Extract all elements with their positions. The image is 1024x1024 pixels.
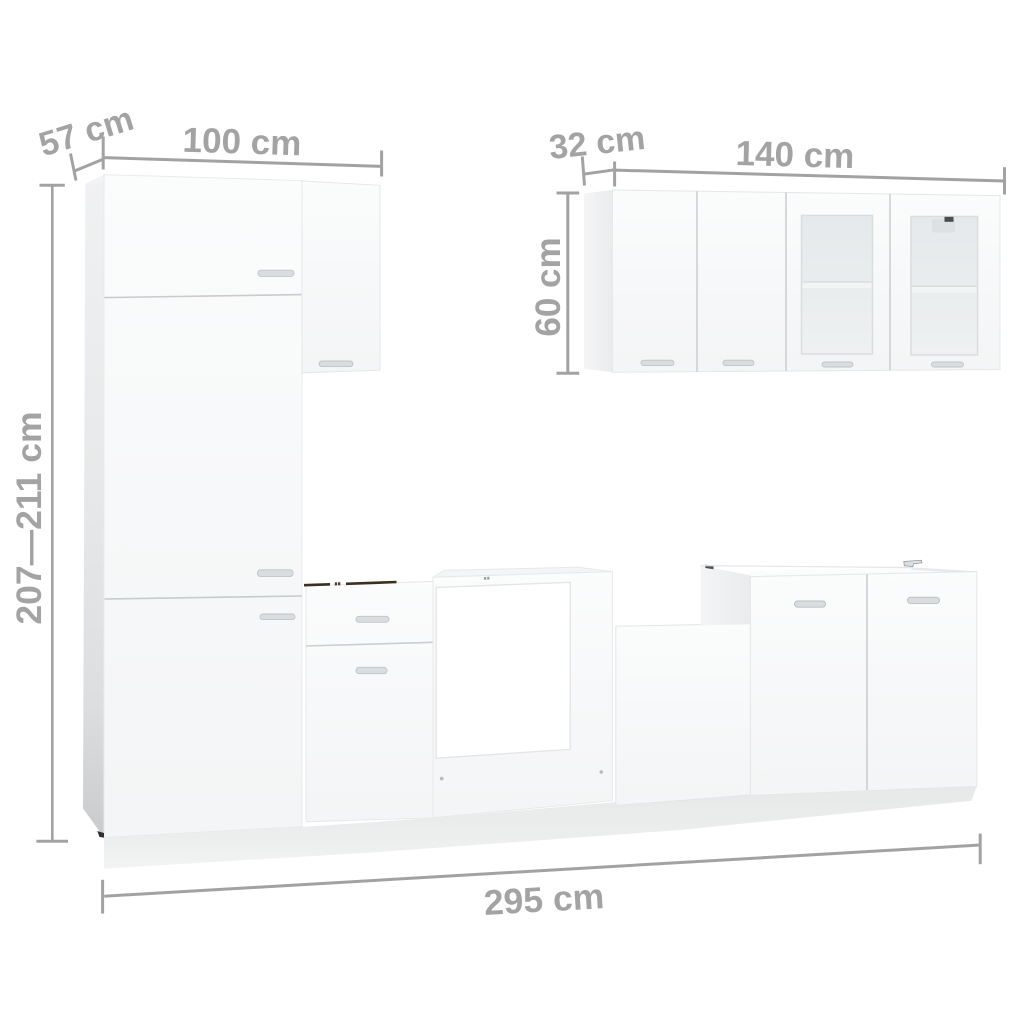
svg-text:207—211 cm: 207—211 cm bbox=[9, 411, 49, 624]
svg-text:100 cm: 100 cm bbox=[182, 121, 302, 164]
svg-text:60 cm: 60 cm bbox=[529, 237, 568, 336]
svg-text:295 cm: 295 cm bbox=[483, 876, 606, 923]
svg-text:140 cm: 140 cm bbox=[735, 134, 855, 176]
